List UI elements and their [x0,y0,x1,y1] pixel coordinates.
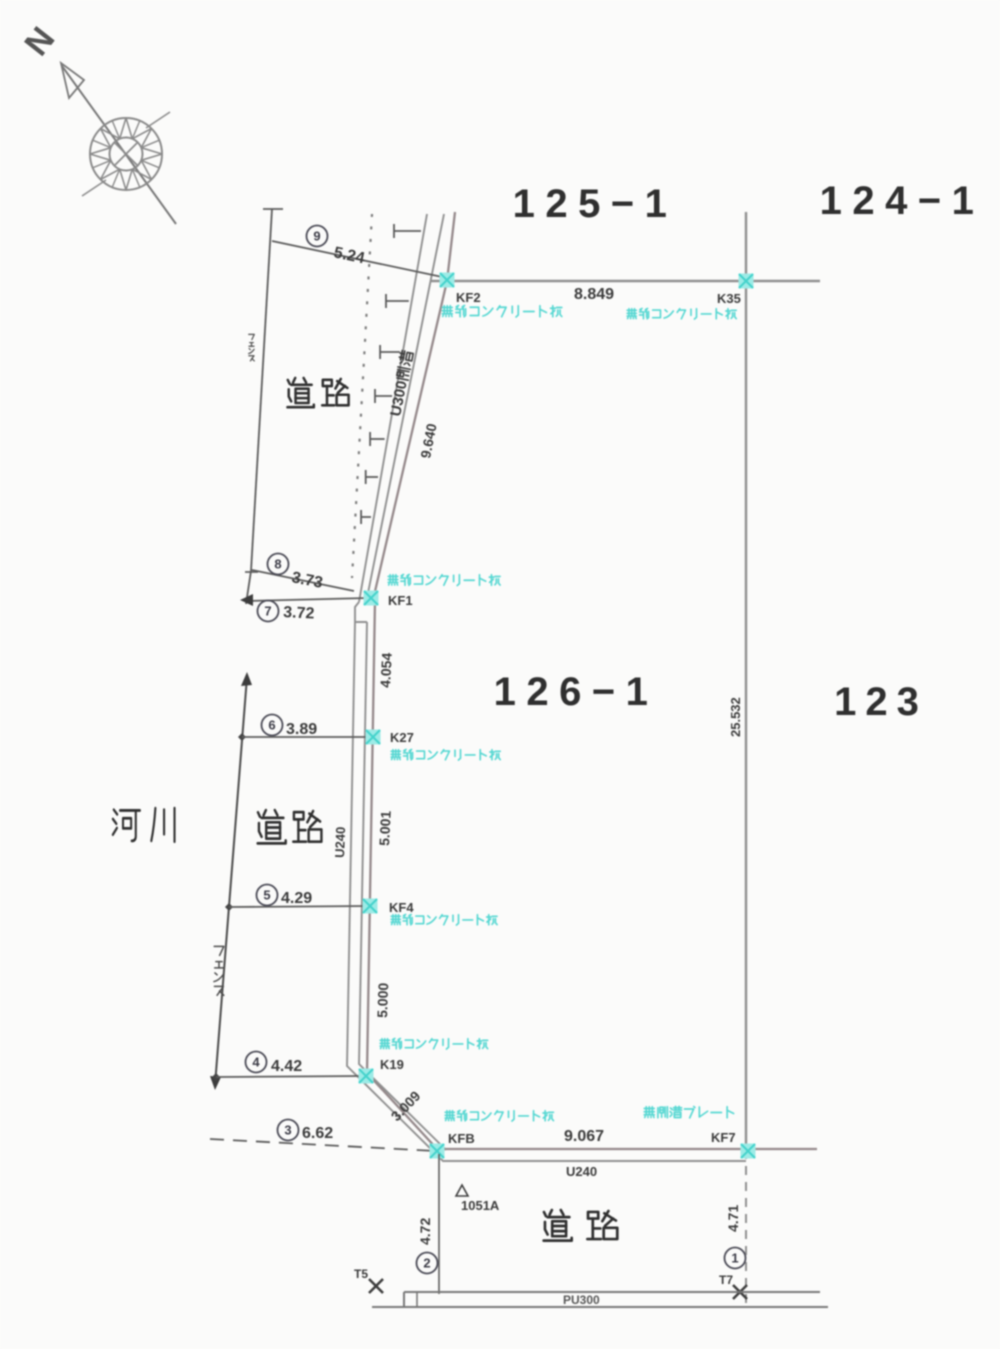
svg-text:9.067: 9.067 [564,1128,604,1145]
svg-text:5.001: 5.001 [376,810,394,846]
svg-text:KF7: KF7 [711,1130,736,1145]
svg-text:T7: T7 [719,1273,733,1287]
svg-text:U240: U240 [566,1164,597,1179]
svg-text:4.42: 4.42 [271,1058,302,1075]
svg-text:9: 9 [313,229,320,244]
svg-text:KF2: KF2 [456,290,481,305]
svg-text:3.89: 3.89 [286,721,317,738]
svg-text:KF4: KF4 [389,900,414,915]
svg-text:4.054: 4.054 [377,652,395,688]
svg-text:KF1: KF1 [388,593,413,608]
svg-text:PU300: PU300 [563,1293,600,1307]
svg-text:U240: U240 [332,827,348,859]
svg-text:7: 7 [264,604,271,619]
svg-text:3.72: 3.72 [283,604,315,623]
svg-text:126−1: 126−1 [494,670,659,714]
svg-text:K27: K27 [390,730,414,745]
svg-text:4: 4 [252,1055,260,1070]
svg-text:5.000: 5.000 [374,982,391,1018]
svg-text:6: 6 [268,718,275,733]
svg-text:8: 8 [274,557,281,572]
svg-text:8.849: 8.849 [574,286,614,303]
svg-text:K35: K35 [717,291,741,306]
svg-text:3: 3 [284,1123,291,1138]
svg-text:25.532: 25.532 [728,697,743,737]
svg-text:123: 123 [834,680,928,724]
svg-text:KFB: KFB [448,1131,475,1146]
svg-text:T5: T5 [354,1267,368,1281]
svg-text:1: 1 [731,1251,738,1266]
svg-text:K19: K19 [380,1057,404,1072]
svg-text:6.62: 6.62 [302,1125,333,1142]
svg-text:124−1: 124−1 [820,179,985,223]
svg-text:1051A: 1051A [461,1198,500,1213]
svg-text:5: 5 [263,888,270,903]
svg-text:2: 2 [423,1256,430,1271]
svg-text:4.29: 4.29 [281,890,312,907]
svg-text:4.72: 4.72 [417,1218,433,1245]
svg-text:4.71: 4.71 [725,1205,741,1232]
svg-text:125−1: 125−1 [513,182,678,226]
